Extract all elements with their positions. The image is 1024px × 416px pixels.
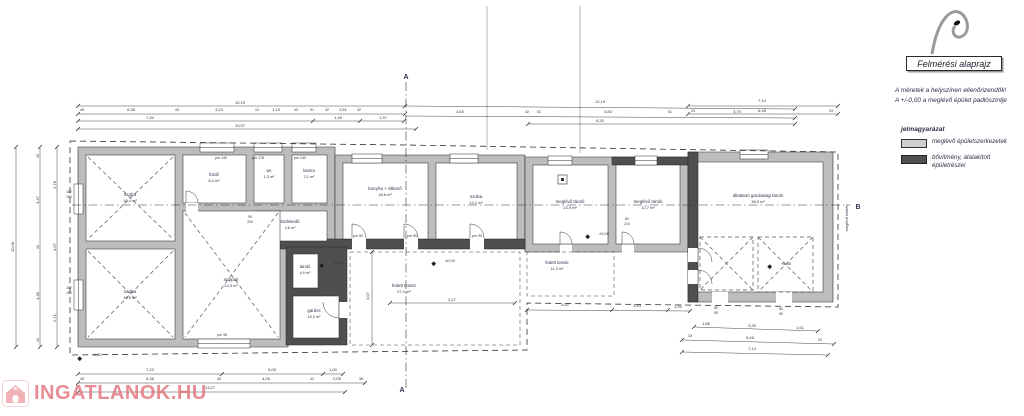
plan-label: +0,50 [781, 261, 792, 266]
plan-label: 33 [818, 338, 822, 342]
plan-label: 6,38 [127, 107, 136, 112]
legend-heading: jelmagyarázat [901, 126, 1021, 133]
plan-label: fedett terasz [392, 283, 416, 288]
plan-label: pm 90 [353, 234, 363, 238]
plan-label: -1,30 [92, 352, 102, 357]
plan-label: 1,20 [674, 304, 683, 309]
plan-label: 45 [80, 108, 84, 112]
plan-label: 80 [779, 307, 783, 311]
legend-label-extension: bővítmény, átalakított épületrészei [932, 154, 990, 171]
room-outbuilding [698, 162, 823, 292]
plan-label: meglévő tároló [634, 199, 663, 204]
plan-label: tároló [300, 264, 311, 269]
plan-label: konyha + étkező [368, 186, 402, 191]
plan-label: pm 90 [472, 234, 482, 238]
plan-label: 210 [624, 222, 630, 226]
plan-label: 1,00 [329, 367, 338, 372]
plan-label: 1,51 [339, 107, 348, 112]
plan-label: 4,07 [365, 291, 370, 300]
plan-label: állattartó gazdasági tároló [733, 193, 784, 198]
plan-label: meglévő tároló [556, 199, 585, 204]
plan-label: 10,19 [235, 100, 246, 105]
plan-label: 5,05 [268, 367, 277, 372]
plan-label: 45 [36, 154, 40, 158]
plan-label: 90 [248, 215, 252, 219]
plan-label: szoba [470, 194, 483, 199]
plan-label: 42 [357, 108, 361, 112]
plan-label: 4,67 [52, 242, 57, 251]
legend-label-existing: meglévő épületszerkezetek [932, 138, 1007, 146]
plan-label: 12 [255, 108, 259, 112]
plan-label: 80 [625, 217, 629, 221]
title-box: Felmérési alaprajz [906, 56, 1002, 71]
plan-label: 10,57 [235, 123, 246, 128]
plan-label: 10,08 [10, 241, 15, 252]
plan-label: 95 [779, 312, 783, 316]
plan-label: A [399, 387, 404, 394]
plan-label: wc [266, 168, 271, 173]
plan-label: 51 [537, 110, 541, 114]
plan-label: 5,4 m² [208, 178, 220, 183]
plan-label: 3,35 [748, 323, 757, 328]
plan-label: 23 [691, 109, 695, 113]
plan-label: 200 [247, 220, 253, 224]
floor-plan-drawing: szoba16,4 m²szoba16,9 m²nappali24,3 m²fü… [0, 0, 1024, 416]
covered-areas [350, 252, 614, 345]
plan-label: 150 [66, 291, 72, 295]
legend: jelmagyarázat meglévő épületszerkezetek … [901, 126, 1021, 177]
plan-label: 7,14 [748, 346, 757, 351]
plan-label: 91 [310, 108, 314, 112]
plan-label: 6,48 [758, 108, 767, 113]
chimney-symbol [558, 175, 567, 184]
plan-label: kamra [303, 168, 315, 173]
note-line-2: A +/-0,00 a meglévő épület padlószintje [895, 96, 1021, 106]
plan-label: garázs [307, 308, 321, 313]
legend-swatch-extension [901, 155, 927, 164]
plan-label: pm 176 [252, 156, 264, 160]
plan-label: 3,84 [604, 109, 613, 114]
plan-label: 2,78 [52, 180, 57, 189]
plan-label: 12,7 m² [641, 205, 655, 210]
plan-label: 2,05 [333, 376, 342, 381]
plan-label: 7,22 [146, 367, 155, 372]
plan-label: 6,48 [746, 335, 755, 340]
plan-label: +0,00 [333, 260, 344, 265]
watermark-text: INGATLANOK.HU [34, 382, 207, 405]
plan-label: 150 [66, 195, 72, 199]
plan-label: ±0,00 [445, 258, 456, 263]
plan-label: 42 [310, 377, 314, 381]
plan-label: 43 [36, 338, 40, 342]
plan-label: 3,79 [733, 109, 742, 114]
plan-label: 4,38 [35, 291, 40, 300]
plan-label: 43 [175, 108, 179, 112]
plan-label: pm 140 [215, 156, 227, 160]
plan-label: 15 [36, 245, 40, 249]
plan-label: 1,61 [796, 325, 805, 330]
plan-label: 3,43 [633, 303, 642, 308]
plan-label: A [403, 74, 408, 81]
plan-label: 7,14 [758, 98, 767, 103]
plan-label: 43 [217, 377, 221, 381]
plan-label: ±0,00 [599, 231, 610, 236]
plan-label: 15,0 m² [308, 315, 322, 319]
plan-label: 2,1 m² [304, 175, 315, 179]
plan-label: 16,9 m² [123, 295, 137, 300]
room-kamra [292, 155, 327, 203]
legend-swatch-existing [901, 139, 927, 148]
plan-label: 3,52 [561, 302, 570, 307]
plan-label: 38,9 m² [751, 199, 765, 204]
plan-label: 11,2 m² [551, 267, 564, 271]
plan-label: pm 36 [217, 333, 227, 337]
plan-label: 33 [829, 109, 833, 113]
plan-label: 51 [668, 110, 672, 114]
plan-label: nappali [224, 277, 239, 282]
plan-label: 3,24 [215, 107, 224, 112]
house-icon [2, 380, 29, 407]
plan-label: pm 90 [407, 234, 417, 238]
plan-label: 4,9 m² [300, 271, 311, 275]
plan-label: 1,3 m² [264, 175, 275, 179]
logo [920, 4, 980, 56]
plan-label: 4,26 [262, 376, 271, 381]
plan-label: 42 [525, 110, 529, 114]
plan-label: 12,19 [595, 99, 606, 104]
plan-label: B [855, 204, 860, 211]
plan-label: meglévő kerítés [845, 205, 849, 232]
note-line-1: A méretek a helyszínen ellenőrizendők! [895, 86, 1021, 96]
plan-label: 38 [359, 377, 363, 381]
logo-swoosh-icon [920, 4, 980, 56]
plan-label: 95 [714, 311, 718, 315]
plan-label: 33 [688, 334, 692, 338]
plan-label: 2,71 [52, 313, 57, 322]
floor-plan-page: szoba16,4 m²szoba16,9 m²nappali24,3 m²fü… [0, 0, 1024, 416]
plan-label: fedett tornác [545, 260, 568, 265]
plan-label: 16,4 m² [123, 198, 137, 203]
room-wc [254, 155, 284, 203]
plan-label: 1,37 [379, 115, 388, 120]
porch-outline [527, 252, 614, 296]
plan-label: 3,63 [456, 109, 465, 114]
plan-label: 18,6 m² [378, 192, 392, 197]
plan-label: szoba [124, 192, 137, 197]
room-konyha [343, 163, 428, 239]
legend-item-existing: meglévő épületszerkezetek [901, 138, 1021, 148]
plan-label: 1,15 [272, 107, 281, 112]
plan-label: 42 [325, 108, 329, 112]
plan-label: pm 140 [294, 156, 306, 160]
plan-label: 12,1 m² [469, 200, 483, 205]
terrace-outline [350, 252, 520, 345]
legend-item-extension: bővítmény, átalakított épületrészei [901, 154, 1021, 171]
plan-label: 4,6 m² [285, 226, 296, 230]
plan-label: 43 [294, 108, 298, 112]
plan-label: 167 [66, 286, 72, 290]
notes: A méretek a helyszínen ellenőrizendők! A… [895, 86, 1021, 106]
plan-label: 7,34 [146, 115, 155, 120]
plan-label: szoba [124, 289, 137, 294]
plan-label: 13,9 m² [563, 205, 577, 210]
plan-label: 24,3 m² [224, 283, 238, 288]
page-title: Felmérési alaprajz [917, 59, 991, 69]
watermark: INGATLANOK.HU [2, 380, 207, 407]
plan-label: 4,47 [35, 195, 40, 204]
plan-label: 8,33 [596, 118, 605, 123]
plan-label: 27,4 m² [397, 289, 411, 294]
plan-label: 80 [714, 306, 718, 310]
plan-label: közlekedő [281, 219, 301, 224]
plan-label: fürdő [209, 172, 220, 177]
plan-label: 2,27 [448, 297, 457, 302]
plan-label: 1,48 [334, 115, 343, 120]
plan-label: 1,88 [702, 321, 711, 326]
plan-label: 167 [66, 190, 72, 194]
